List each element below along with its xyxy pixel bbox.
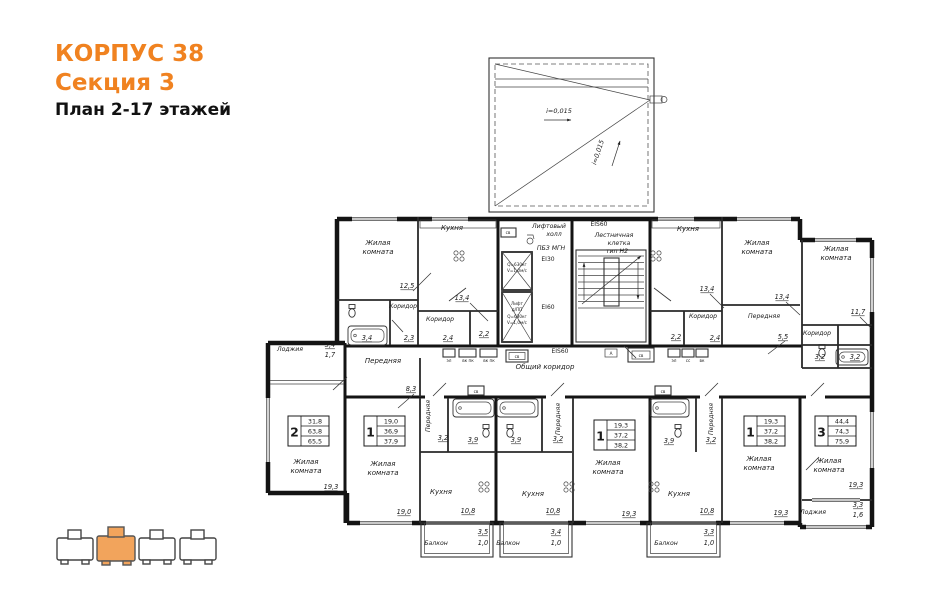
keyplan-section-active: [97, 527, 135, 565]
keyplan-section-1: [57, 530, 93, 564]
keyplan-section-4: [180, 530, 216, 564]
keyplan-section-3: [139, 530, 175, 564]
floor-plan-page: КОРПУС 38 Секция 3 План 2-17 этажей: [0, 0, 941, 600]
section-key-plan: [0, 0, 941, 600]
